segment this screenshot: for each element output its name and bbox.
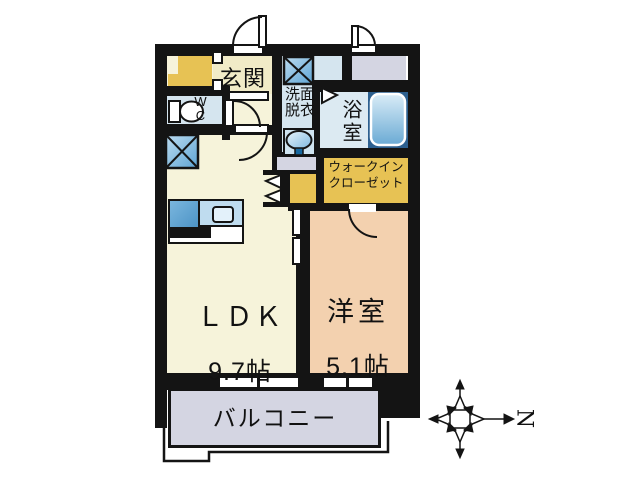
refrigerator-space-icon xyxy=(166,135,198,168)
folding-door-icon xyxy=(263,170,281,207)
western-room-name: 洋室 xyxy=(302,290,414,329)
bathroom-label: 浴室 xyxy=(341,93,365,151)
wc-door-arc-icon xyxy=(234,101,260,127)
washroom-label: 洗面 脱衣 xyxy=(281,87,319,119)
sink-icon xyxy=(287,131,312,155)
western-room-door-arc-icon xyxy=(349,209,377,237)
wc-label: W C xyxy=(186,95,216,122)
bathroom-door-icon xyxy=(322,88,337,103)
ldk-size: 9.7帖 xyxy=(178,352,302,388)
bathtub-icon xyxy=(371,94,405,145)
compass-icon xyxy=(429,380,514,458)
western-room-label: 洋室 5.1帖 xyxy=(302,272,414,401)
compass-north-label: N xyxy=(512,407,537,431)
ldk-label: ＬＤＫ 9.7帖 xyxy=(178,277,302,406)
utility-door-icon xyxy=(352,26,375,47)
ldk-name: ＬＤＫ xyxy=(178,295,302,334)
walk-in-closet-label: ウォークイン クローゼット xyxy=(322,160,410,191)
genkan-label: 玄関 xyxy=(214,61,272,93)
floor-plan: 玄関 W C 洗面 脱衣 浴室 ウォークイン クローゼット ＬＤＫ 9.7帖 洋… xyxy=(0,0,640,480)
balcony-label: バルコニー xyxy=(190,399,360,433)
western-room-size: 5.1帖 xyxy=(302,347,414,383)
ldk-door-arc-icon xyxy=(239,132,267,160)
washing-machine-icon xyxy=(284,57,313,84)
entry-door-icon xyxy=(233,16,266,47)
